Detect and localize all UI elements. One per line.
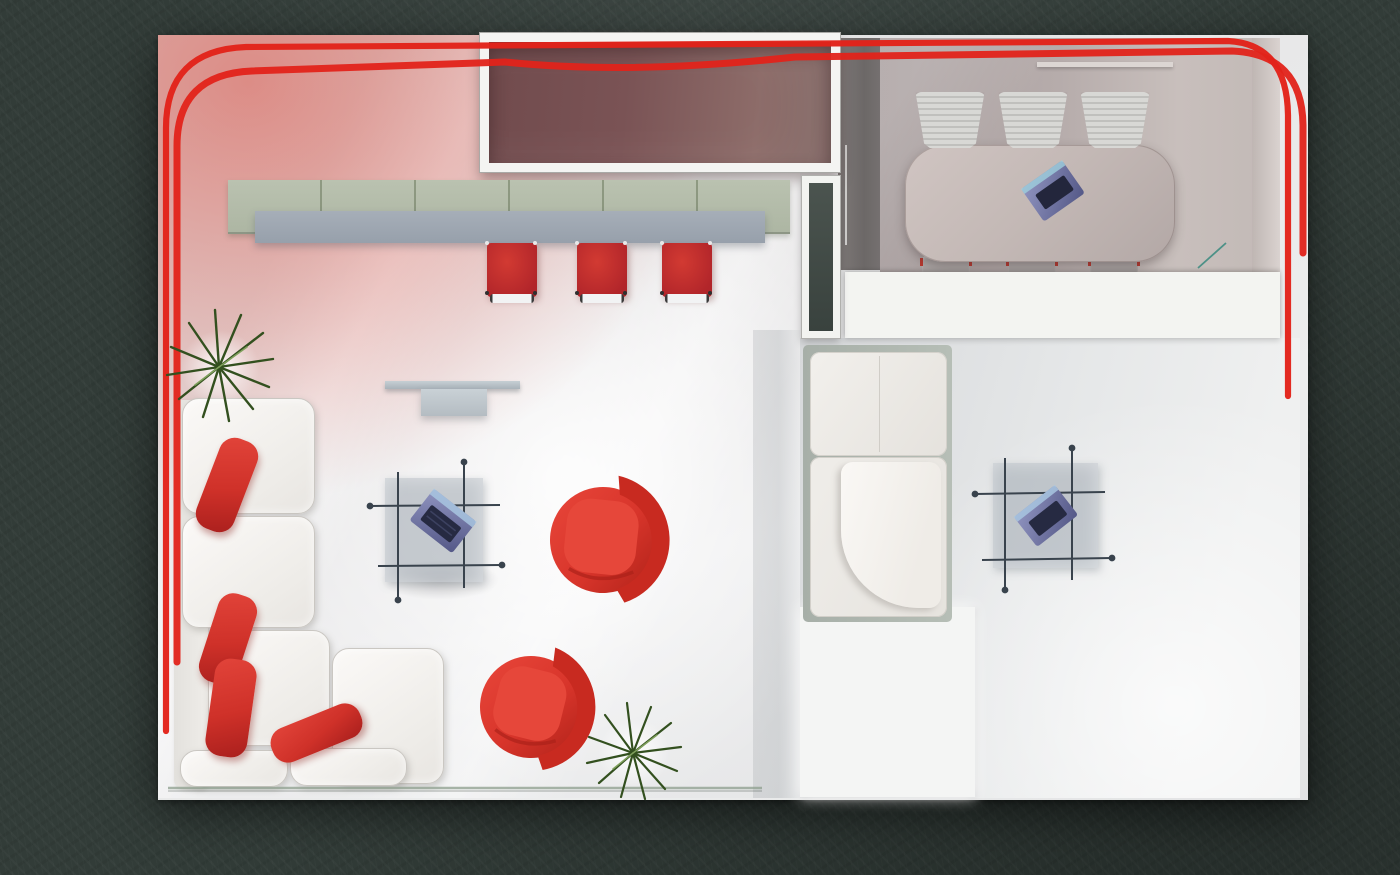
bar-stool-1 <box>487 243 537 297</box>
conference-chair-2 <box>997 92 1069 148</box>
coffee-table-left <box>385 478 483 582</box>
plant-pot-glow <box>180 330 260 406</box>
white-rug <box>800 607 975 797</box>
sofa-right-corner-seat <box>810 457 947 617</box>
conference-right-wall <box>1252 38 1280 272</box>
console-shelf <box>385 381 520 389</box>
floor-divider-shadow <box>753 330 800 798</box>
conference-chair-3 <box>1079 92 1151 148</box>
bar-counter <box>255 211 765 243</box>
cabinet-handle <box>845 145 847 245</box>
partition-wall <box>845 272 1280 338</box>
console-body <box>421 389 487 416</box>
bar-stool-3 <box>662 243 712 297</box>
sofa-right-back-cushion <box>810 352 947 456</box>
side-table-right <box>993 463 1098 568</box>
render-canvas <box>0 0 1400 875</box>
bar-stool-2 <box>577 243 627 297</box>
plant-pot-glow <box>598 718 670 788</box>
door-partition <box>802 176 840 338</box>
conference-chair-1 <box>914 92 986 148</box>
conference-table <box>905 145 1175 262</box>
conference-wall-ledge <box>1037 62 1173 67</box>
display-window <box>480 33 840 172</box>
